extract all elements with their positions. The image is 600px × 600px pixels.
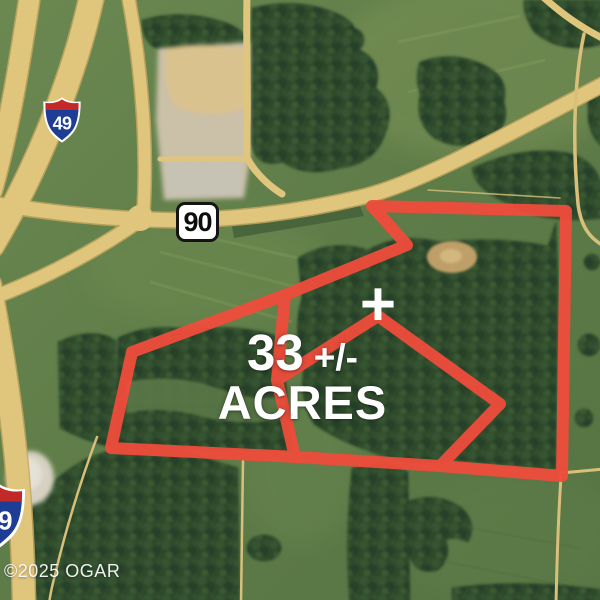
interstate-49-shield: 49 xyxy=(42,95,82,145)
satellite-imagery: + xyxy=(0,0,600,600)
route-90-number: 90 xyxy=(183,207,211,238)
interstate-bottom-number: 49 xyxy=(0,506,12,536)
acreage-label: 33+/- ACRES xyxy=(200,327,405,427)
gravel-lot xyxy=(156,42,250,200)
interstate-top-number: 49 xyxy=(53,113,72,133)
acreage-line1: 33+/- xyxy=(200,327,405,379)
lot-road xyxy=(247,0,248,158)
dirt-clearing xyxy=(427,241,477,273)
acreage-unit: ACRES xyxy=(200,379,405,427)
acreage-tolerance: +/- xyxy=(314,337,358,378)
watermark: ©2025 OGAR xyxy=(4,561,120,582)
route-90-sign: 90 xyxy=(176,202,219,242)
interstate-49-shield-partial: 49 xyxy=(0,481,27,551)
aerial-parcel-map: + 49 xyxy=(0,0,600,600)
